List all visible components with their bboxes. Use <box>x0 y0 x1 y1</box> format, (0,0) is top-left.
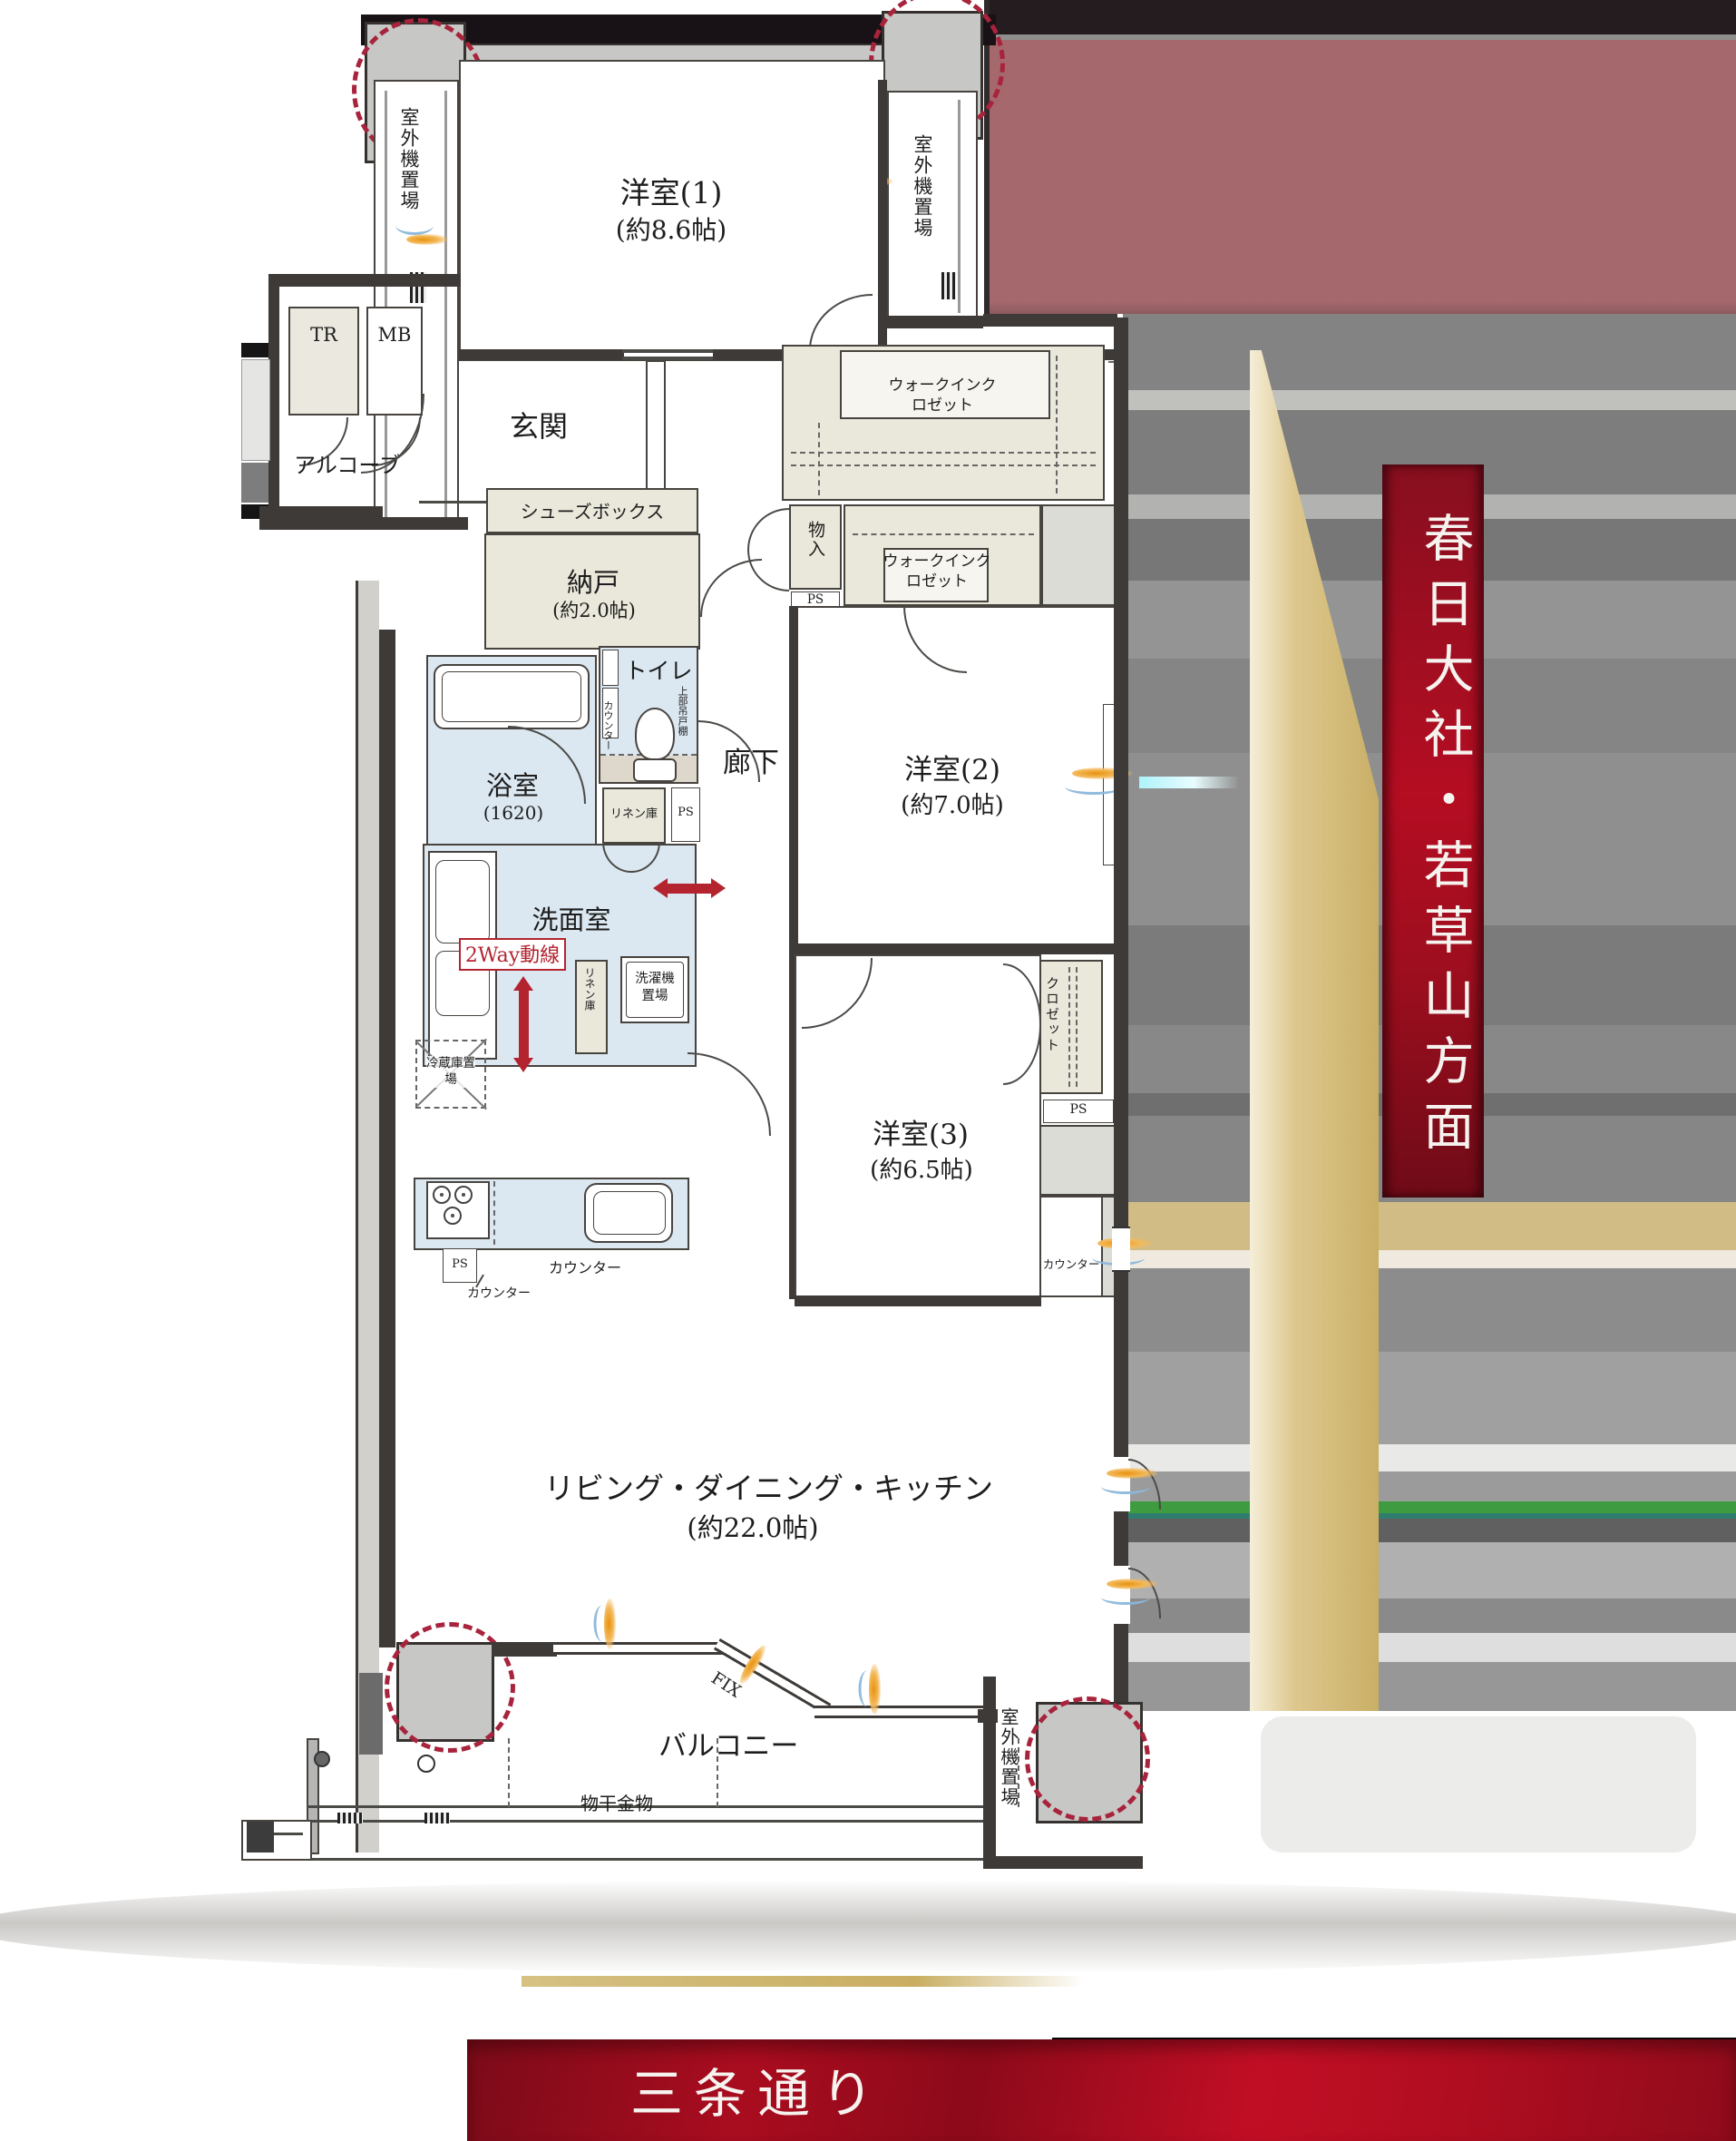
boundary-mark <box>241 463 268 503</box>
window-band <box>553 1642 726 1655</box>
counter-label-2: カウンター <box>463 1286 535 1303</box>
ldk-name: リビング・ダイニング・キッチン <box>544 1470 961 1507</box>
pipe-space-label: PS <box>443 1257 477 1272</box>
outdoor-unit-label: 室外機置場 <box>395 107 423 211</box>
photo-white-patch <box>1261 1716 1696 1853</box>
party-wall-end <box>359 1673 383 1755</box>
laundry-pole <box>508 1738 510 1807</box>
linen-label: リネン庫 <box>602 807 666 822</box>
wind-icon <box>594 1606 611 1642</box>
walk-in-closet-1-label: ウォークインクロゼット <box>887 376 998 415</box>
arrow-head <box>513 1058 533 1072</box>
closet-label: クロゼット <box>1043 976 1062 1053</box>
toilet-counter-box <box>602 650 619 686</box>
sink-inner <box>593 1191 666 1235</box>
drain-cap <box>314 1751 330 1767</box>
two-way-note: 2Way動線 <box>459 938 566 971</box>
wall-segment <box>887 316 983 328</box>
direction-banner: 春日大社・若草山方面 <box>1382 464 1484 1198</box>
door-arc-storage <box>747 508 789 550</box>
wall-line <box>622 349 715 353</box>
gold-strip-bottom <box>522 1976 1084 1987</box>
door-arc-ldk <box>688 1052 771 1136</box>
window-gap <box>1112 1227 1130 1272</box>
wall-fill <box>1039 1125 1117 1196</box>
floorplan-advert: 春日大社・若草山方面 三条通り 室外機置場 室外機置場 洋室(1) (約8.6帖… <box>0 0 1736 2141</box>
hanger-dash <box>791 452 1096 454</box>
vent-grille <box>941 272 956 299</box>
wall-segment <box>370 517 468 530</box>
toilet-tank <box>633 758 677 782</box>
burner <box>454 1186 473 1204</box>
wind-icon <box>1101 1589 1150 1605</box>
laundry-pole <box>717 1738 718 1807</box>
pipe-space-label: PS <box>669 806 702 820</box>
direction-banner-text: 春日大社・若草山方面 <box>1408 512 1481 1165</box>
walk-in-closet-2-label: ウォークインクロゼット <box>882 552 992 591</box>
wall-segment <box>795 943 1117 954</box>
wall-segment <box>492 1642 557 1657</box>
wall-fill <box>1041 504 1116 606</box>
wall-segment <box>878 80 887 350</box>
hanger-dash <box>818 423 820 495</box>
wall-line <box>622 357 715 360</box>
washroom-label: 洗面室 <box>517 904 626 936</box>
toilet-bowl <box>635 708 675 760</box>
pillar-highlight-circle <box>1025 1696 1150 1822</box>
hall-wall-column <box>646 360 666 493</box>
room-western1-size: (約8.6帖) <box>544 214 798 246</box>
two-way-arrow-vertical <box>519 991 529 1058</box>
drain-grille <box>337 1813 363 1823</box>
soft-gray-band <box>0 1880 1736 1974</box>
closet-dash <box>1068 967 1070 1087</box>
room-western1-name: 洋室(1) <box>544 174 798 211</box>
counter-dash <box>493 1181 495 1245</box>
wind-icon <box>1101 1479 1150 1494</box>
photo-top-mauve <box>984 0 1736 314</box>
street-banner: 三条通り <box>467 2039 1736 2141</box>
room-western3-name: 洋室(3) <box>844 1118 998 1153</box>
party-wall <box>356 581 379 1853</box>
window-band <box>814 1706 983 1718</box>
door-arc-toilet <box>698 720 760 782</box>
laundry-hardware-label: 物干金物 <box>553 1793 680 1815</box>
photo-cyan-glint <box>1139 777 1239 788</box>
counter-label: カウンター <box>544 1259 626 1277</box>
room-western2-name: 洋室(2) <box>871 753 1034 788</box>
storeroom-size: (約2.0帖) <box>508 599 680 622</box>
storage-small-label: 物入 <box>804 521 828 559</box>
wall-segment <box>795 1295 1041 1306</box>
street-banner-text: 三条通り <box>576 2061 939 2127</box>
balcony-corner-block <box>247 1822 274 1853</box>
shoe-box-label: シューズボックス <box>486 501 698 523</box>
outdoor-unit-label: 室外機置場 <box>996 1707 1022 1807</box>
upper-cabinet-label: 上部吊戸棚 <box>675 686 689 736</box>
sink <box>584 1183 673 1243</box>
wall-segment <box>259 506 383 530</box>
outdoor-unit-label: 室外機置場 <box>909 134 936 239</box>
drain-cap <box>417 1755 435 1773</box>
pipe-space-label: PS <box>1043 1102 1114 1119</box>
bay-line <box>444 91 447 517</box>
wall-segment <box>983 1677 996 1869</box>
wall-segment <box>459 349 624 360</box>
washer-label: 洗濯機置場 <box>629 971 680 1005</box>
arrow-head <box>653 878 668 898</box>
entrance-label: 玄関 <box>501 408 577 445</box>
two-way-text: 2Way動線 <box>461 943 564 969</box>
linen-label-2: リネン庫 <box>582 967 598 1011</box>
wind-icon <box>395 216 434 235</box>
hanger-dash <box>791 464 1096 466</box>
boundary-mark <box>241 359 270 461</box>
counter-niche <box>1039 1196 1103 1297</box>
bathroom-size: (1620) <box>475 802 551 825</box>
ldk-size: (約22.0帖) <box>653 1511 853 1544</box>
bathtub <box>434 664 590 729</box>
hanger-dash <box>853 533 1034 535</box>
bathtub-inner <box>442 671 581 722</box>
arrow-head <box>711 878 726 898</box>
flame-icon <box>406 234 448 245</box>
hanger-dash <box>1056 356 1058 494</box>
fridge-label: 冷蔵庫置場 <box>426 1056 475 1088</box>
toilet-label: トイレ <box>624 657 693 685</box>
flame-icon <box>1107 1468 1157 1479</box>
vanity-bowl <box>435 860 490 943</box>
balcony-label: バルコニー <box>658 1729 758 1765</box>
storeroom-name: 納戸 <box>512 566 675 599</box>
boundary-mark <box>241 343 268 357</box>
bay-line <box>958 100 961 313</box>
wall-segment <box>983 1856 1143 1869</box>
drain-grille <box>424 1813 450 1823</box>
wall-segment <box>983 314 1117 327</box>
trunk-room-label: TR <box>288 323 359 347</box>
burner <box>433 1186 451 1204</box>
meter-box-label: MB <box>366 323 423 347</box>
burner <box>444 1207 462 1225</box>
room-western3-size: (約6.5帖) <box>831 1156 1012 1186</box>
counter-label: カウンター <box>600 700 615 750</box>
balcony-slab-line <box>241 1858 994 1861</box>
flame-icon <box>1107 1579 1157 1589</box>
two-way-arrow-horizontal <box>666 884 713 894</box>
wind-icon <box>859 1671 876 1707</box>
wall-segment <box>268 274 461 287</box>
wall-segment <box>379 630 395 1647</box>
closet-dash <box>1076 967 1078 1087</box>
arrow-head <box>513 976 533 991</box>
room-western2-size: (約7.0帖) <box>863 791 1041 821</box>
